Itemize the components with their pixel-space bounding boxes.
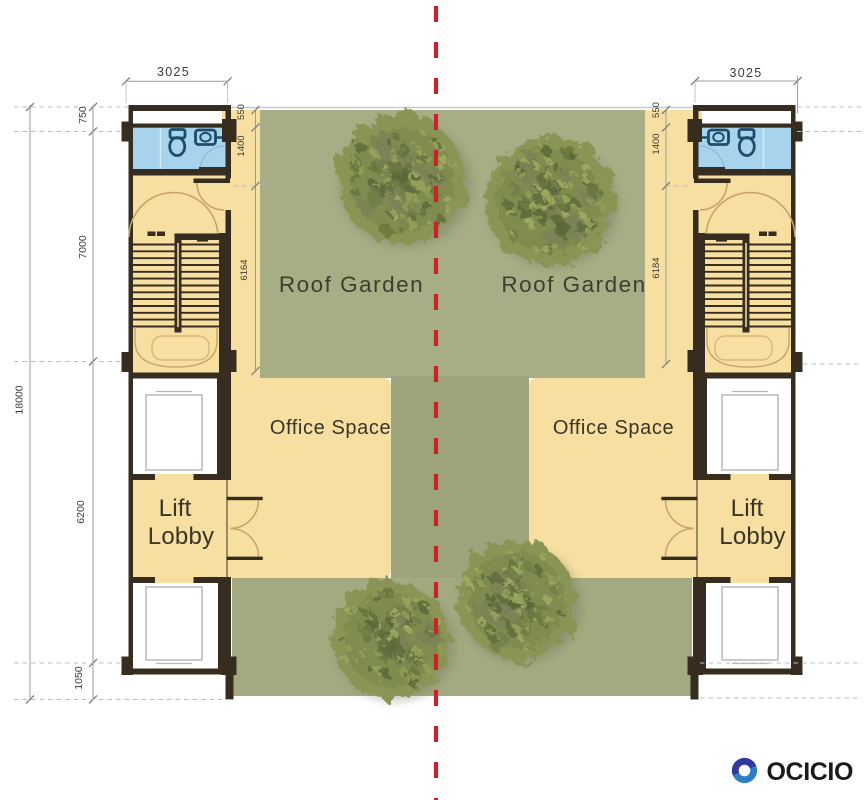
svg-text:Roof Garden: Roof Garden (279, 272, 424, 297)
svg-text:Lobby: Lobby (719, 523, 785, 550)
svg-text:1400: 1400 (651, 133, 662, 154)
svg-text:7000: 7000 (77, 235, 89, 259)
svg-text:750: 750 (77, 106, 89, 124)
svg-text:6184: 6184 (651, 257, 662, 278)
svg-text:Lobby: Lobby (148, 523, 214, 550)
svg-text:1050: 1050 (73, 666, 85, 690)
svg-text:Lift: Lift (159, 495, 192, 522)
svg-text:6200: 6200 (75, 500, 87, 524)
svg-text:1400: 1400 (236, 135, 247, 156)
svg-text:OCICIO: OCICIO (767, 758, 854, 786)
svg-text:3025: 3025 (729, 66, 762, 80)
svg-text:6164: 6164 (239, 259, 250, 280)
svg-text:Office Space: Office Space (270, 417, 391, 439)
svg-text:3025: 3025 (157, 65, 190, 79)
svg-text:550: 550 (651, 102, 662, 118)
svg-text:Roof Garden: Roof Garden (501, 272, 646, 297)
svg-text:550: 550 (236, 104, 247, 120)
svg-text:18000: 18000 (14, 385, 26, 414)
svg-text:Lift: Lift (731, 495, 764, 522)
svg-text:Office Space: Office Space (553, 417, 674, 439)
